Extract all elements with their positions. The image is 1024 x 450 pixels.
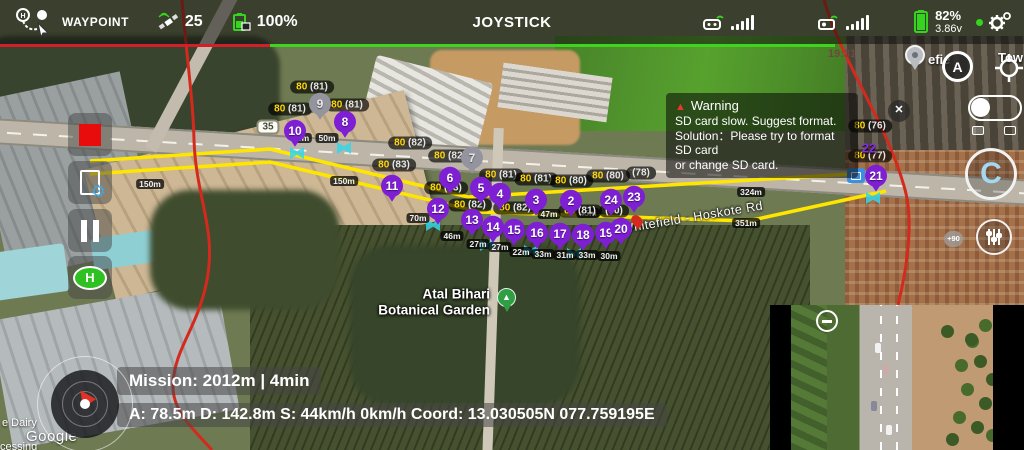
waypoint-pin[interactable]: 3 (525, 189, 547, 211)
waypoint-pin[interactable]: 8 (334, 111, 356, 133)
waypoint-pin[interactable]: 23 (623, 186, 645, 208)
altitude-label: 80 (80) (586, 170, 630, 183)
battery-icon (913, 9, 929, 35)
waypoint-pin[interactable]: 6 (439, 167, 461, 189)
map-pond (0, 243, 70, 301)
waypoint-pin[interactable]: 21 (865, 165, 887, 187)
status-dot (976, 19, 983, 26)
status-underline-green (270, 44, 835, 47)
battery-status-group: 82% 3.86v (913, 9, 962, 35)
warning-line3: or change SD card. (675, 158, 849, 173)
distance-label: 70m (406, 213, 429, 223)
video-signal-group (816, 12, 869, 32)
place-pin-icon[interactable] (905, 45, 925, 65)
return-home-button[interactable]: H (68, 256, 112, 299)
waypoint-pin[interactable]: 12 (427, 198, 449, 220)
warning-line1: SD card slow. Suggest format. (675, 114, 849, 129)
altitude-label: 80 (81) (268, 103, 312, 116)
stop-mission-button[interactable] (68, 113, 112, 156)
waypoint-pin-ghost[interactable]: 7 (461, 147, 483, 169)
warning-title-row: ▲Warning (675, 98, 849, 113)
pip-collapse-button[interactable] (816, 310, 838, 332)
mission-summary: Mission: 2012m | 4min (117, 367, 321, 395)
flight-mode-label[interactable]: WAYPOINT (62, 15, 129, 29)
waypoint-mode-icon[interactable]: H (14, 7, 54, 37)
photo-mode-icon[interactable] (972, 126, 984, 135)
battery-voltage: 3.86v (935, 23, 962, 35)
altitude-label: (78) (626, 167, 656, 180)
waypoint-pin[interactable]: 2 (560, 190, 582, 212)
map-icon: ⚙ (80, 170, 100, 195)
top-status-bar: H WAYPOINT 25 100% JOYSTICK (0, 0, 1024, 44)
settings-group[interactable] (976, 10, 1012, 34)
close-icon[interactable]: ✕ (888, 100, 910, 122)
map-label-processing: cessing (0, 441, 37, 450)
battery-percent: 82% (935, 9, 962, 23)
satellite-icon (157, 11, 179, 33)
drone-ground-control-screen: 0m50m150m150m70m46m27m27m22m33m31m33m30m… (0, 0, 1024, 450)
rc-signal-group (701, 12, 754, 32)
altitude-label: 80 (81) (290, 81, 334, 94)
warning-panel: ▲Warning SD card slow. Suggest format. S… (666, 93, 858, 178)
waypoint-pin-ghost[interactable]: 9 (309, 93, 331, 115)
compass-icon[interactable]: A (942, 51, 973, 82)
distance-label: 324m (737, 187, 765, 197)
waypoint-pin[interactable]: 4 (489, 183, 511, 205)
tree-pin-icon[interactable]: ▲ (497, 288, 516, 307)
joystick-label[interactable]: JOYSTICK (472, 14, 551, 31)
waypoint-pin[interactable]: 17 (549, 223, 571, 245)
waypoint-pin[interactable]: 15 (503, 219, 525, 241)
distance-label: 150m (136, 179, 164, 189)
video-mode-icon[interactable] (1004, 126, 1016, 135)
distance-label: 351m (732, 218, 760, 228)
waypoint-pin[interactable]: 13 (461, 209, 483, 231)
waypoint-pin[interactable]: 16 (526, 222, 548, 244)
waypoint-pin[interactable]: 18 (572, 224, 594, 246)
mission-battery-icon (229, 11, 251, 33)
pause-icon (81, 220, 99, 242)
map-garden-zone (350, 245, 580, 405)
camera-feed-pip[interactable] (770, 305, 1024, 450)
map-settings-button[interactable]: ⚙ (68, 161, 112, 204)
waypoint-pin[interactable]: 24 (600, 189, 622, 211)
video-transmission-icon (816, 12, 840, 32)
gimbal-pitch-badge: +90 (944, 231, 963, 247)
distance-label: 150m (330, 176, 358, 186)
telemetry-stats: A: 78.5m D: 142.8m S: 44km/h 0km/h Coord… (117, 403, 667, 427)
satellite-count: 25 (185, 13, 203, 31)
rc-signal-bars (731, 15, 754, 30)
altitude-label: 80 (83) (372, 159, 416, 172)
altitude-label: 80 (81) (325, 99, 369, 112)
warning-line2: Solution：Please try to format SD card (675, 129, 849, 158)
video-signal-bars (846, 15, 869, 30)
poi-label: Atal Bihari Botanical Garden (378, 286, 490, 317)
camera-mode-toggle[interactable] (968, 95, 1022, 121)
settings-gear-icon (986, 10, 1012, 34)
distance-label: 50m (315, 133, 338, 143)
time-label: 19:31 (828, 48, 856, 60)
altitude-label: 80 (82) (388, 137, 432, 150)
waypoint-pin[interactable]: 14 (482, 216, 504, 238)
mission-battery-percent: 100% (257, 13, 298, 31)
svg-text:H: H (20, 13, 25, 20)
home-icon: H (73, 266, 107, 290)
waypoint-pin[interactable]: 11 (381, 175, 403, 197)
pause-mission-button[interactable] (68, 209, 112, 252)
waypoint-pin[interactable]: 20 (610, 218, 632, 240)
camera-settings-icon[interactable] (976, 219, 1012, 255)
waypoint-pin[interactable]: 10 (284, 120, 306, 142)
stop-icon (79, 124, 101, 146)
locate-crosshair-icon[interactable] (995, 54, 1023, 87)
status-underline-red (0, 44, 270, 47)
distance-label: 46m (440, 231, 463, 241)
road-shield-badge: 35 (256, 120, 279, 135)
gear-icon: ⚙ (91, 183, 106, 200)
map-trees-zone2 (150, 190, 340, 310)
gimbal-recenter-icon[interactable]: C (965, 148, 1017, 200)
warning-triangle-icon: ▲ (675, 101, 686, 113)
rc-controller-icon (701, 12, 725, 32)
waypoint-22-number[interactable]: 22 (862, 141, 876, 156)
